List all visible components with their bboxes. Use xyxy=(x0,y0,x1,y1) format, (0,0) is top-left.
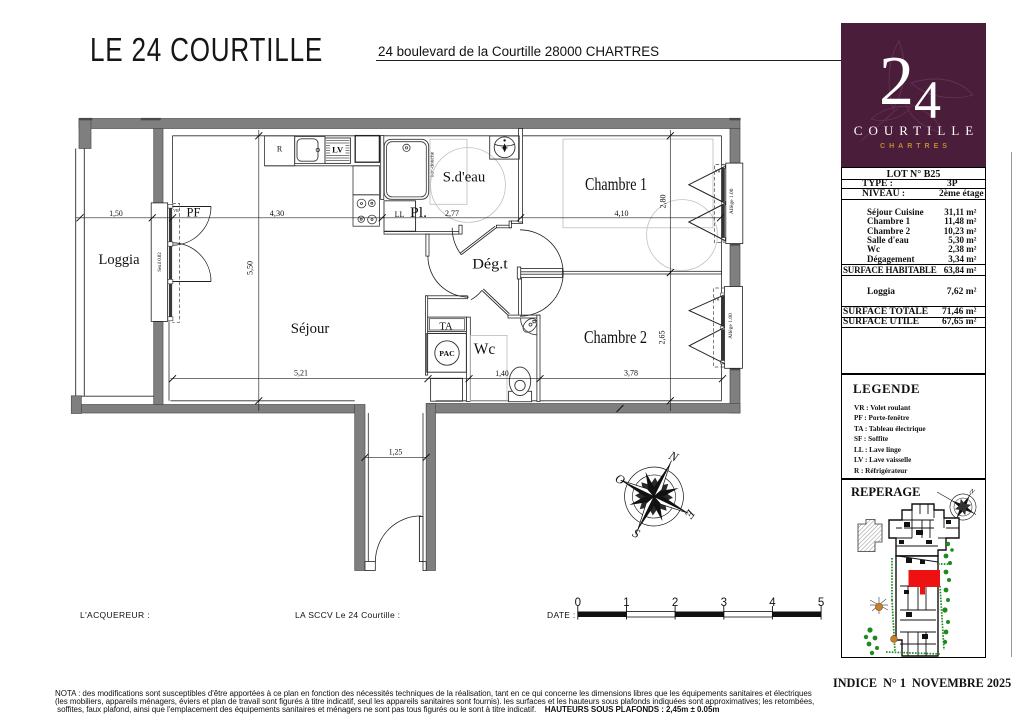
svg-text:O: O xyxy=(613,471,627,488)
svg-text:3: 3 xyxy=(721,597,727,609)
svg-text:VR: VR xyxy=(173,208,179,213)
svg-text:Allège 1.00: Allège 1.00 xyxy=(729,188,735,214)
svg-text:0: 0 xyxy=(575,597,581,609)
svg-text:Chambre 1: Chambre 1 xyxy=(585,174,647,194)
svg-text:4,30: 4,30 xyxy=(270,208,285,218)
svg-text:5,21: 5,21 xyxy=(294,368,308,378)
svg-text:1,40: 1,40 xyxy=(495,368,509,378)
svg-text:5: 5 xyxy=(818,597,824,609)
svg-text:R: R xyxy=(277,145,283,154)
svg-text:Dég.t: Dég.t xyxy=(472,257,508,273)
svg-text:Allège 1.00: Allège 1.00 xyxy=(728,313,734,339)
svg-text:1,50: 1,50 xyxy=(109,208,123,218)
svg-text:4: 4 xyxy=(769,597,776,609)
svg-text:VR: VR xyxy=(715,169,721,174)
svg-text:2,77: 2,77 xyxy=(445,208,459,218)
svg-text:1: 1 xyxy=(623,597,629,609)
svg-text:1,25: 1,25 xyxy=(389,447,403,457)
svg-text:4,10: 4,10 xyxy=(615,208,629,218)
svg-text:Pl.: Pl. xyxy=(410,205,427,221)
svg-text:Loggia: Loggia xyxy=(99,252,141,268)
svg-text:Séjour: Séjour xyxy=(291,321,330,337)
svg-text:PF: PF xyxy=(187,206,201,220)
svg-text:E: E xyxy=(682,506,699,522)
svg-text:S.d'eau: S.d'eau xyxy=(443,169,486,185)
svg-text:2,80: 2,80 xyxy=(658,195,668,209)
svg-text:5,50: 5,50 xyxy=(245,261,255,275)
svg-text:PAC: PAC xyxy=(439,349,455,358)
svg-text:LV: LV xyxy=(332,145,344,155)
svg-text:2,65: 2,65 xyxy=(657,331,667,345)
svg-text:TA: TA xyxy=(439,322,453,333)
svg-text:N: N xyxy=(666,448,681,465)
svg-text:2: 2 xyxy=(672,597,678,609)
svg-text:3,78: 3,78 xyxy=(624,368,638,378)
svg-text:Chambre 2: Chambre 2 xyxy=(584,327,647,347)
svg-text:VR: VR xyxy=(714,297,720,302)
svg-text:Seuil 0.02: Seuil 0.02 xyxy=(158,252,163,272)
svg-text:S: S xyxy=(630,526,642,542)
svg-text:Wc: Wc xyxy=(474,341,496,358)
